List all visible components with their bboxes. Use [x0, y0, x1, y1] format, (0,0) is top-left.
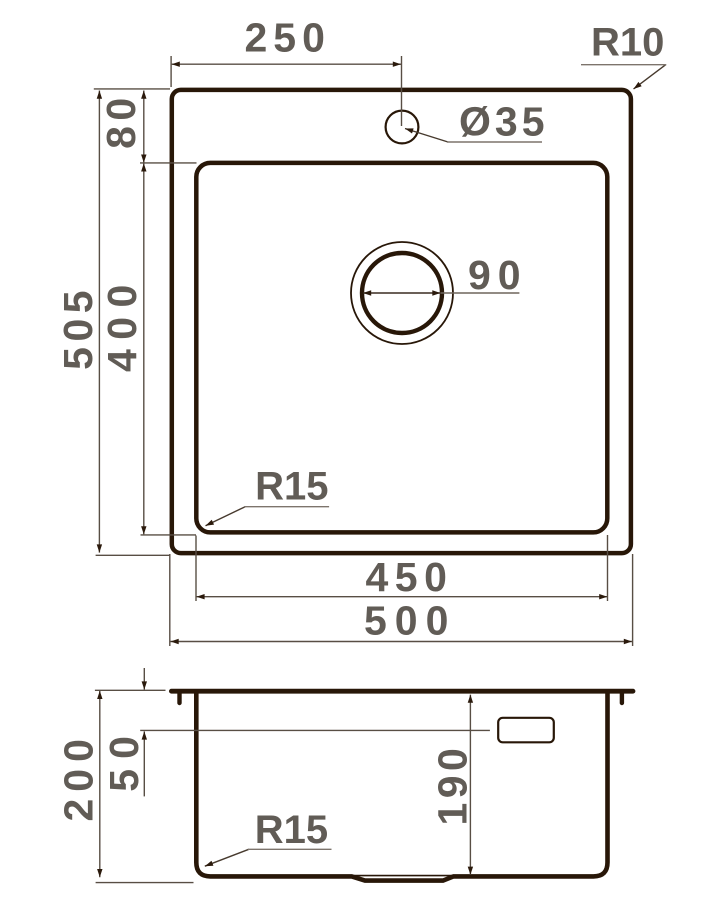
- svg-text:50: 50: [101, 726, 147, 792]
- svg-text:R10: R10: [591, 21, 664, 65]
- svg-text:450: 450: [366, 554, 454, 600]
- svg-text:190: 190: [429, 744, 475, 826]
- svg-text:500: 500: [364, 598, 456, 644]
- svg-text:90: 90: [468, 252, 528, 298]
- svg-text:505: 505: [55, 285, 101, 370]
- svg-text:R15: R15: [255, 465, 328, 509]
- svg-text:250: 250: [245, 15, 331, 61]
- svg-text:400: 400: [99, 275, 145, 372]
- svg-text:200: 200: [56, 732, 102, 821]
- svg-text:Ø35: Ø35: [459, 99, 549, 145]
- svg-text:R15: R15: [255, 808, 328, 852]
- svg-text:80: 80: [98, 92, 144, 149]
